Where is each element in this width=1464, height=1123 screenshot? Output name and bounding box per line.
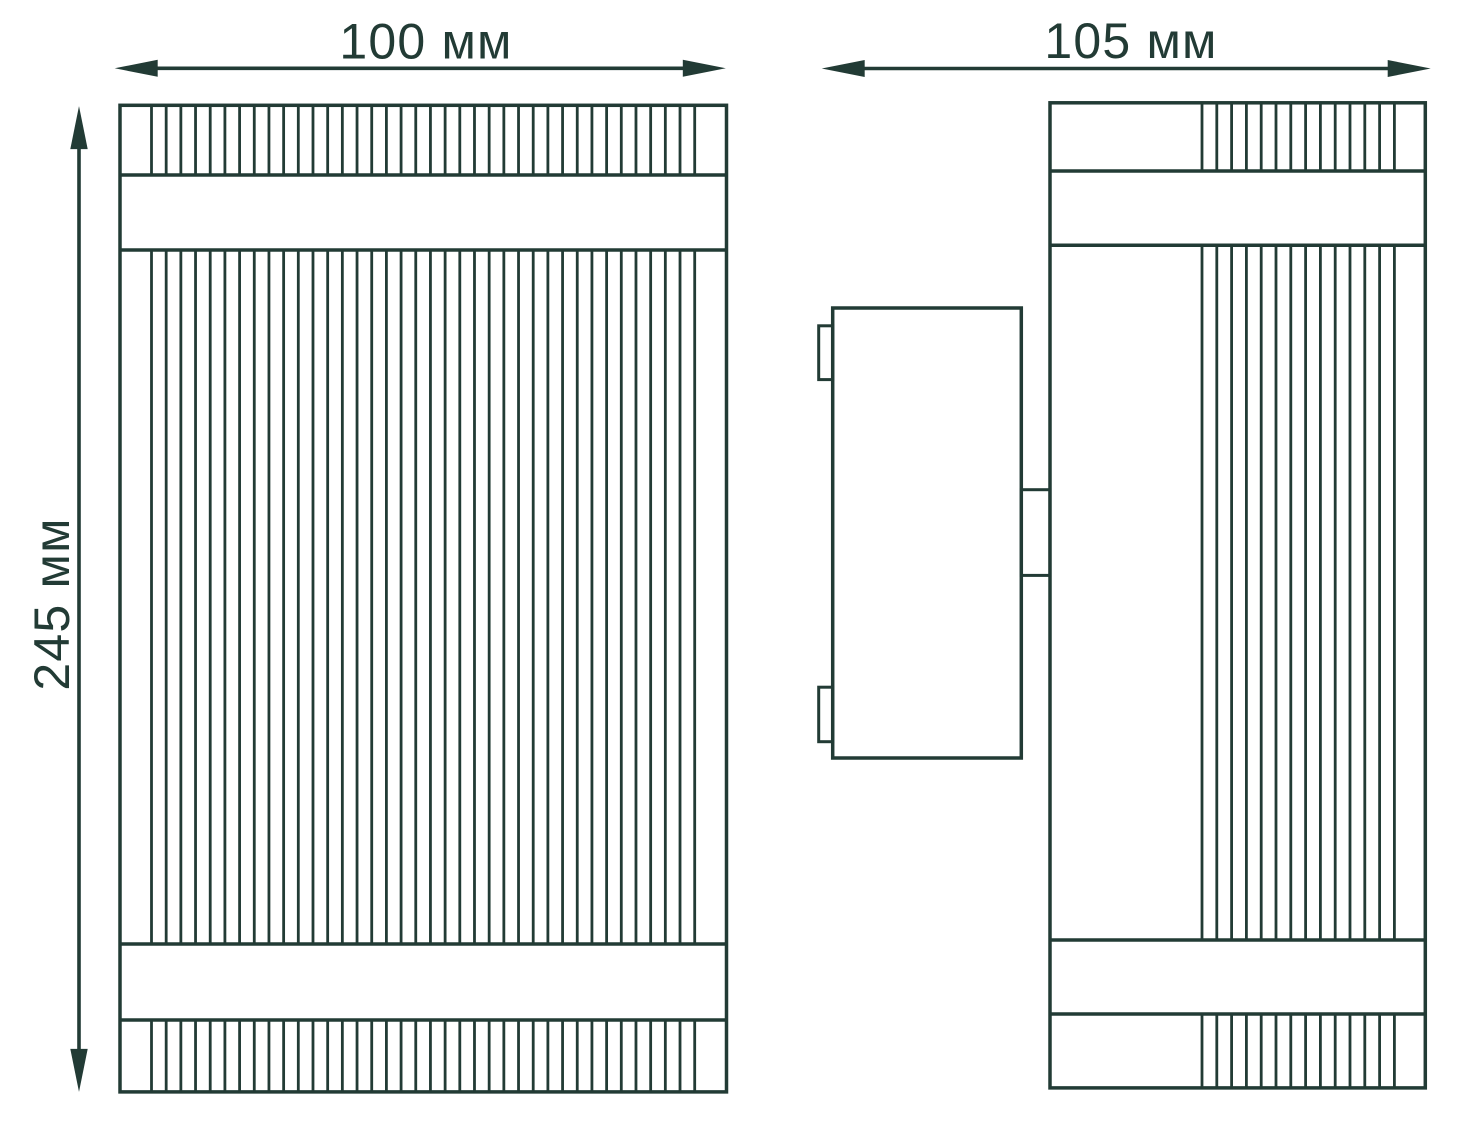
- svg-text:100 мм: 100 мм: [339, 14, 512, 70]
- svg-text:105 мм: 105 мм: [1044, 13, 1217, 69]
- svg-text:245 мм: 245 мм: [24, 517, 80, 690]
